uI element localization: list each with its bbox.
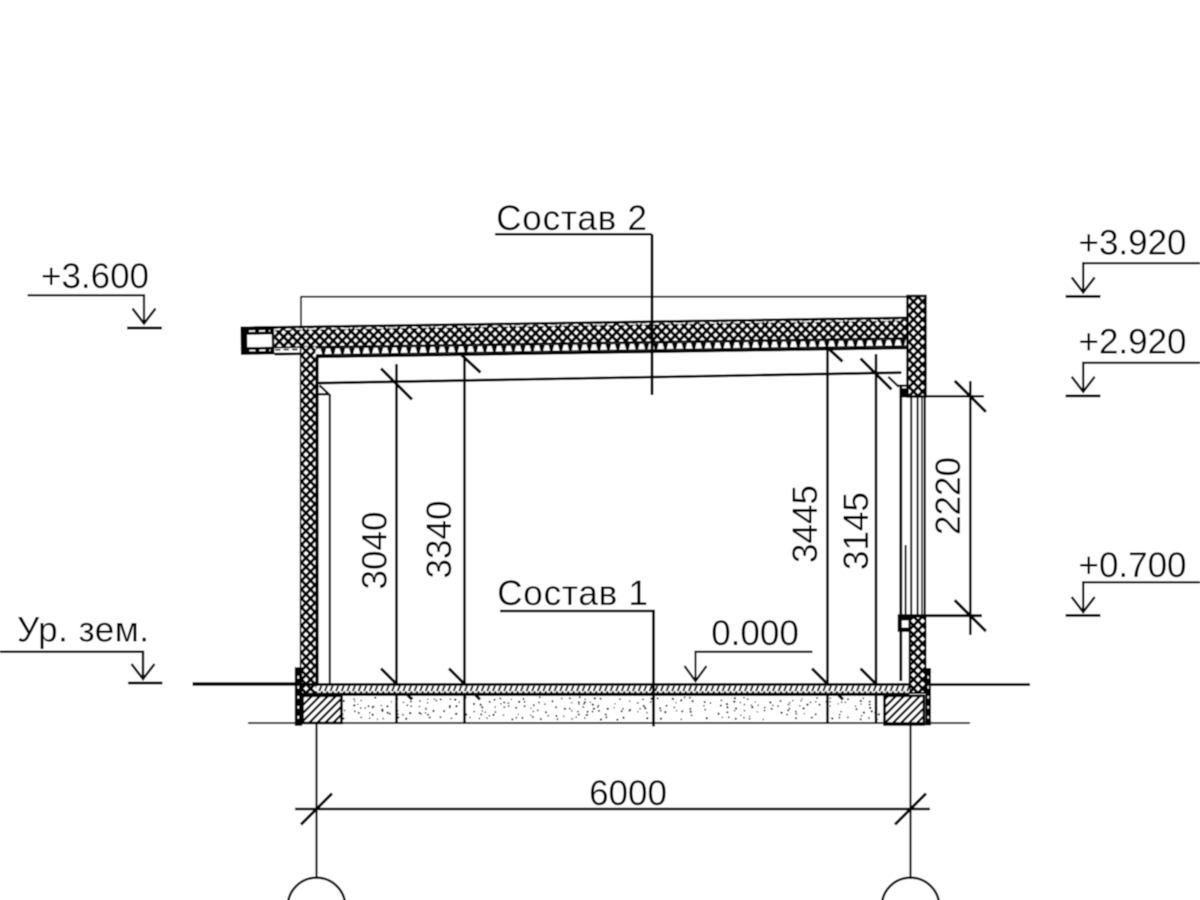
svg-text:Состав 1: Состав 1 [497,574,649,613]
svg-text:6000: 6000 [589,774,667,813]
svg-text:Состав 2: Состав 2 [496,199,648,238]
svg-text:Ур. зем.: Ур. зем. [17,611,149,650]
svg-text:+2.920: +2.920 [1079,323,1187,362]
svg-text:3445: 3445 [786,485,825,563]
svg-text:3040: 3040 [356,512,395,590]
svg-text:0.000: 0.000 [711,614,799,653]
svg-text:3145: 3145 [837,492,876,570]
svg-text:+0.700: +0.700 [1079,546,1187,585]
svg-text:+3.600: +3.600 [41,257,149,296]
svg-text:3340: 3340 [420,501,459,579]
svg-text:2220: 2220 [929,457,968,535]
svg-text:+3.920: +3.920 [1079,224,1187,263]
